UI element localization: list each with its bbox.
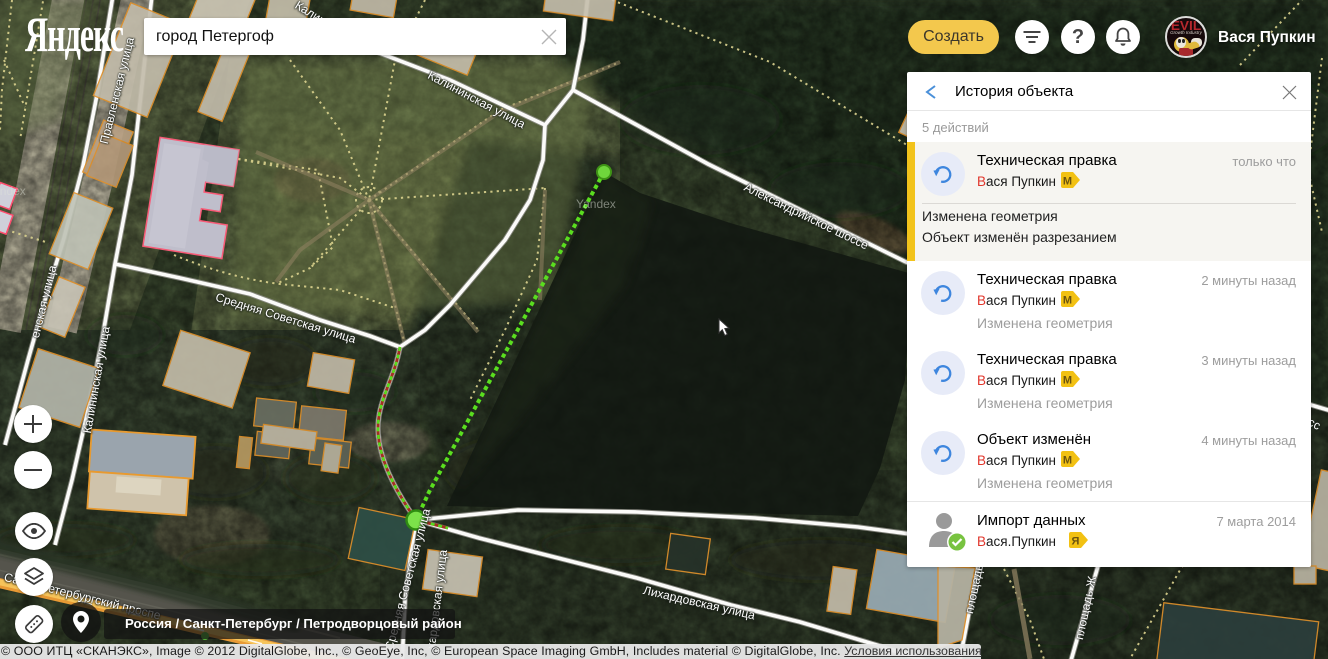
svg-text:М: М [1063, 375, 1072, 387]
svg-text:М: М [1063, 176, 1072, 188]
svg-text:Я: Я [1072, 536, 1080, 548]
svg-text:М: М [1063, 455, 1072, 467]
svg-text:М: М [1063, 295, 1072, 307]
